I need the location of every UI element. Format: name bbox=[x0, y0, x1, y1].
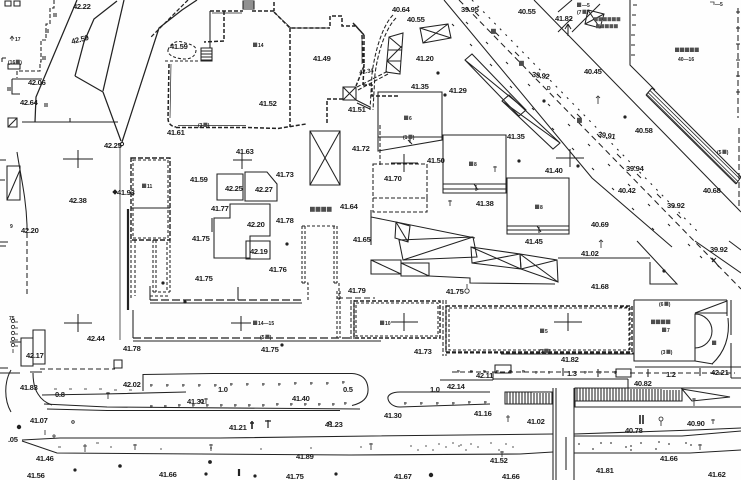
svg-text:41.23: 41.23 bbox=[325, 420, 343, 429]
svg-text:40.78: 40.78 bbox=[625, 426, 643, 435]
svg-text:40.55: 40.55 bbox=[407, 15, 426, 24]
svg-text:42.34: 42.34 bbox=[359, 68, 375, 76]
svg-text:41.61: 41.61 bbox=[167, 128, 186, 137]
svg-text:41.63: 41.63 bbox=[236, 147, 254, 156]
svg-text:42.17: 42.17 bbox=[26, 351, 44, 360]
svg-text:41.79: 41.79 bbox=[348, 286, 366, 295]
svg-text:42.64: 42.64 bbox=[20, 98, 39, 107]
svg-text:41.83: 41.83 bbox=[20, 383, 38, 392]
svg-text:41.89: 41.89 bbox=[296, 452, 314, 461]
svg-text:6: 6 bbox=[409, 116, 412, 122]
svg-text:42.21: 42.21 bbox=[711, 368, 730, 377]
svg-text:42.11: 42.11 bbox=[476, 371, 494, 380]
svg-text:(1: (1 bbox=[403, 135, 408, 141]
svg-text:41.45: 41.45 bbox=[525, 237, 544, 246]
svg-text:(6: (6 bbox=[659, 302, 664, 308]
svg-text:—5: —5 bbox=[715, 2, 723, 8]
svg-text:41.30: 41.30 bbox=[384, 411, 402, 420]
svg-text:41.81: 41.81 bbox=[596, 466, 615, 475]
svg-text:42.59: 42.59 bbox=[70, 33, 89, 46]
svg-text:41.31: 41.31 bbox=[187, 397, 206, 406]
svg-text:41.29: 41.29 bbox=[449, 86, 467, 95]
svg-text:41.76: 41.76 bbox=[269, 265, 287, 274]
svg-text:41.75: 41.75 bbox=[446, 287, 465, 296]
svg-text:41.67: 41.67 bbox=[394, 472, 412, 480]
svg-text:40.82: 40.82 bbox=[634, 379, 652, 388]
svg-text:41.73: 41.73 bbox=[276, 170, 294, 179]
svg-text:41.70: 41.70 bbox=[384, 174, 402, 183]
svg-text:41.64: 41.64 bbox=[340, 202, 359, 211]
svg-text:41.59: 41.59 bbox=[190, 175, 208, 184]
svg-text:41.38: 41.38 bbox=[476, 199, 494, 208]
svg-text:8: 8 bbox=[540, 205, 543, 211]
svg-text:40.45: 40.45 bbox=[584, 67, 603, 76]
svg-text:42.19: 42.19 bbox=[250, 247, 268, 256]
svg-text:40.90: 40.90 bbox=[687, 419, 705, 428]
svg-text:40.58: 40.58 bbox=[635, 126, 653, 135]
svg-text:40.69: 40.69 bbox=[591, 220, 609, 229]
svg-text:41.20: 41.20 bbox=[416, 54, 434, 63]
svg-text:41.50: 41.50 bbox=[427, 156, 445, 165]
svg-text:41.56: 41.56 bbox=[27, 471, 45, 480]
svg-text:41.75: 41.75 bbox=[192, 234, 211, 243]
svg-text:7: 7 bbox=[667, 328, 670, 334]
svg-text:42.25: 42.25 bbox=[104, 141, 123, 150]
svg-text:41.65: 41.65 bbox=[353, 235, 372, 244]
svg-text:41.66: 41.66 bbox=[159, 470, 177, 479]
svg-text:1.3: 1.3 bbox=[567, 369, 577, 378]
svg-text:39.94: 39.94 bbox=[626, 164, 645, 173]
svg-text:41.82: 41.82 bbox=[561, 355, 579, 364]
svg-text:9: 9 bbox=[10, 224, 13, 230]
svg-text:0.5: 0.5 bbox=[343, 385, 354, 394]
svg-text:(5: (5 bbox=[717, 150, 722, 156]
svg-text:41.40: 41.40 bbox=[545, 166, 563, 175]
svg-text:42.22: 42.22 bbox=[73, 2, 91, 11]
svg-text:41.75: 41.75 bbox=[195, 274, 214, 283]
svg-text:39.92: 39.92 bbox=[667, 201, 685, 210]
svg-text:D: D bbox=[547, 86, 551, 92]
svg-text:42.38: 42.38 bbox=[69, 196, 87, 205]
svg-text:8: 8 bbox=[474, 162, 477, 168]
svg-text:41.16: 41.16 bbox=[474, 409, 492, 418]
svg-text:40—16: 40—16 bbox=[678, 57, 694, 63]
svg-text:41.59: 41.59 bbox=[170, 42, 188, 51]
svg-text:41.52: 41.52 bbox=[259, 99, 277, 108]
svg-text:40.42: 40.42 bbox=[618, 186, 636, 195]
svg-text:17: 17 bbox=[15, 37, 21, 43]
svg-text:(5: (5 bbox=[260, 335, 265, 341]
svg-text:41.78: 41.78 bbox=[276, 216, 294, 225]
svg-text:(3: (3 bbox=[661, 350, 666, 356]
svg-text:42.02: 42.02 bbox=[123, 380, 141, 389]
svg-text:(3: (3 bbox=[198, 123, 203, 129]
svg-text:14: 14 bbox=[258, 43, 264, 49]
svg-text:41.02: 41.02 bbox=[527, 417, 545, 426]
svg-text:41.75: 41.75 bbox=[286, 472, 305, 480]
svg-text:40.55: 40.55 bbox=[518, 7, 537, 16]
svg-text:(3: (3 bbox=[539, 349, 544, 355]
svg-text:): ) bbox=[727, 150, 729, 156]
svg-text:41.40: 41.40 bbox=[292, 394, 310, 403]
svg-text:39.92: 39.92 bbox=[710, 245, 728, 254]
svg-text:41.52: 41.52 bbox=[490, 456, 508, 465]
svg-text:41.02: 41.02 bbox=[581, 249, 599, 258]
svg-text:(16: (16 bbox=[8, 60, 15, 66]
svg-text:1.0: 1.0 bbox=[218, 385, 228, 394]
svg-text:41.51: 41.51 bbox=[348, 105, 367, 114]
svg-text:.05: .05 bbox=[8, 435, 19, 444]
svg-text:39.91: 39.91 bbox=[597, 130, 617, 141]
svg-text:42.44: 42.44 bbox=[87, 334, 106, 343]
svg-text:39.95: 39.95 bbox=[461, 5, 480, 14]
svg-text:—5: —5 bbox=[582, 3, 590, 9]
svg-text:41.72: 41.72 bbox=[352, 144, 370, 153]
svg-text:75: 75 bbox=[9, 316, 15, 322]
svg-text:42.20: 42.20 bbox=[247, 220, 265, 229]
svg-text:40.68: 40.68 bbox=[703, 186, 721, 195]
svg-text:11: 11 bbox=[147, 184, 153, 190]
svg-text:): ) bbox=[669, 302, 671, 308]
svg-text:41.82: 41.82 bbox=[555, 14, 573, 23]
svg-text:41.78: 41.78 bbox=[123, 344, 141, 353]
svg-text:(7: (7 bbox=[577, 10, 582, 16]
svg-text:42.06: 42.06 bbox=[28, 78, 46, 87]
svg-text:10: 10 bbox=[385, 321, 391, 327]
svg-text:1.2: 1.2 bbox=[666, 370, 676, 379]
svg-text:41.73: 41.73 bbox=[414, 347, 432, 356]
svg-text:41.75: 41.75 bbox=[261, 345, 280, 354]
svg-text:5: 5 bbox=[545, 329, 548, 335]
svg-text:42.14: 42.14 bbox=[447, 382, 466, 391]
svg-text:14—15: 14—15 bbox=[258, 321, 274, 327]
svg-text:41.66: 41.66 bbox=[502, 472, 520, 480]
svg-text:): ) bbox=[671, 350, 673, 356]
svg-text:41.66: 41.66 bbox=[660, 454, 678, 463]
svg-text:42.27: 42.27 bbox=[255, 185, 273, 194]
svg-text:): ) bbox=[20, 60, 22, 66]
svg-text:41.46: 41.46 bbox=[36, 454, 54, 463]
svg-text:41.35: 41.35 bbox=[507, 132, 526, 141]
svg-text:41.68: 41.68 bbox=[591, 282, 609, 291]
svg-text:41.77: 41.77 bbox=[211, 204, 229, 213]
svg-text:42.20: 42.20 bbox=[21, 226, 39, 235]
svg-text:41.21: 41.21 bbox=[229, 423, 248, 432]
svg-text:41.62: 41.62 bbox=[708, 470, 726, 479]
svg-text:0.8: 0.8 bbox=[55, 390, 65, 399]
svg-text:41.93: 41.93 bbox=[117, 188, 135, 197]
svg-text:42.25: 42.25 bbox=[225, 184, 244, 193]
svg-text:41.07: 41.07 bbox=[30, 416, 48, 425]
svg-text:41.49: 41.49 bbox=[313, 54, 331, 63]
svg-text:41.35: 41.35 bbox=[411, 82, 430, 91]
svg-text:40.64: 40.64 bbox=[392, 5, 411, 14]
svg-text:): ) bbox=[413, 135, 415, 141]
svg-text:39.92: 39.92 bbox=[531, 70, 550, 81]
svg-text:1.0: 1.0 bbox=[430, 385, 440, 394]
